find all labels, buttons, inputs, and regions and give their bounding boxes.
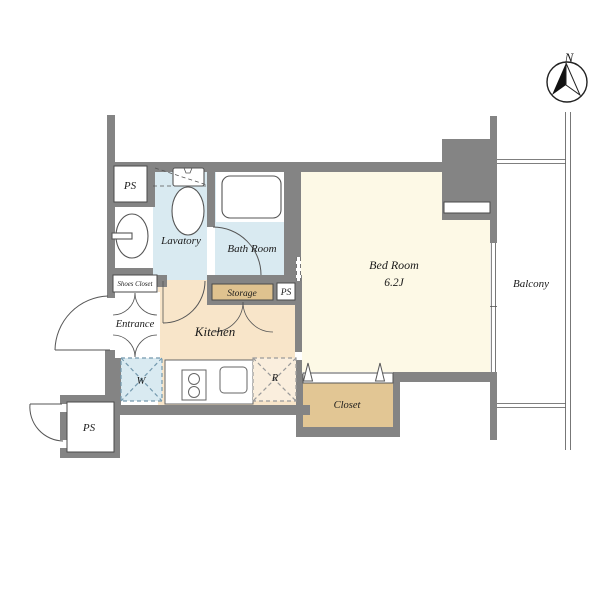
storage-label: Storage bbox=[227, 289, 257, 299]
bathroom-label: Bath Room bbox=[227, 243, 276, 255]
ps-frame-notch-top bbox=[59, 404, 67, 412]
washer-label: W bbox=[137, 376, 147, 387]
shoes-closet-label: Shoes Closet bbox=[118, 281, 154, 288]
fridge-label: R bbox=[271, 373, 279, 384]
ps-mid-label: PS bbox=[280, 288, 292, 298]
washbasin-faucet-icon bbox=[112, 233, 132, 239]
block-niche-window bbox=[444, 202, 490, 213]
wall-closet-bottom bbox=[296, 427, 400, 437]
ps-top-label: PS bbox=[123, 180, 137, 192]
compass-icon: N bbox=[547, 50, 587, 102]
stove-burner-top bbox=[189, 374, 200, 385]
wall-top bbox=[107, 162, 446, 172]
bedroom-size-label: 6.2J bbox=[384, 277, 404, 289]
wall-block-stub bbox=[490, 116, 497, 139]
wall-right-upper bbox=[490, 220, 497, 243]
kitchen-label: Kitchen bbox=[194, 324, 235, 339]
toilet-bowl-icon bbox=[172, 187, 204, 235]
wall-bath-right-upper bbox=[284, 162, 301, 257]
entrance-label: Entrance bbox=[115, 319, 155, 330]
balcony-label: Balcony bbox=[513, 278, 549, 290]
wall-right-lower bbox=[490, 372, 497, 440]
floor-plan: N PS Lavatory Bath Room Shoes Closet Ent… bbox=[0, 0, 600, 600]
bath-door-opening bbox=[207, 227, 215, 275]
stove-burner-bottom bbox=[189, 387, 200, 398]
toilet-tank-icon bbox=[173, 168, 204, 186]
floor-plan-page: N PS Lavatory Bath Room Shoes Closet Ent… bbox=[0, 0, 600, 600]
compass-north-label: N bbox=[564, 50, 575, 65]
kitchen-sink-icon bbox=[220, 367, 247, 393]
neighbor-door-arc bbox=[30, 404, 63, 441]
bedroom-label: Bed Room bbox=[369, 258, 419, 272]
wall-bedroom-bottom bbox=[393, 372, 497, 382]
bathtub-icon bbox=[222, 176, 281, 218]
closet-label: Closet bbox=[334, 400, 362, 411]
lavatory-label: Lavatory bbox=[160, 235, 201, 247]
entrance-door-arc bbox=[55, 296, 108, 350]
wall-kitchen-bottom bbox=[110, 405, 310, 415]
ps-bottom-label: PS bbox=[82, 422, 96, 434]
